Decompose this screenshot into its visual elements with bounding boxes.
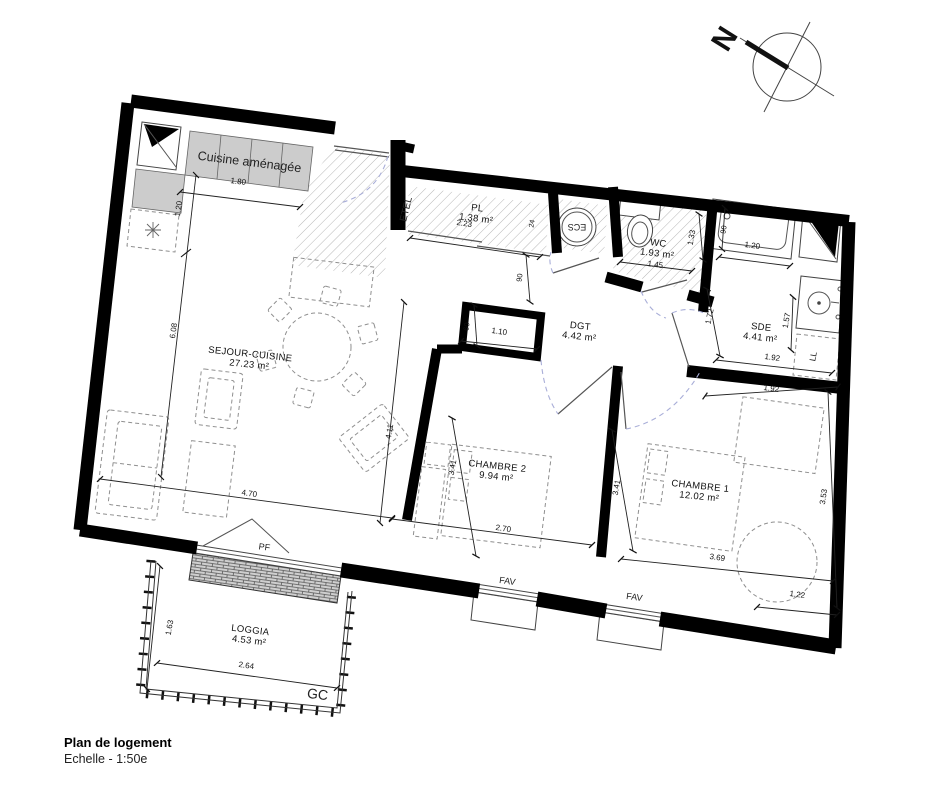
dimension-label-24: 1.63 [164,619,176,636]
ll-label: LL [807,351,819,362]
washbasin [796,276,844,333]
fav-label-2: FAV [626,591,644,603]
north-arrow-icon [746,42,788,68]
fav-label-1: FAV [499,575,517,587]
dimension-label-15: 90 [718,225,728,235]
room-label-sde: SDE4.41 m² [743,320,779,345]
fav-window-2 [597,604,666,650]
hob-star-icon [145,222,161,238]
gc-label: GC [306,685,329,703]
dimension-label-4: 4.11 [384,423,396,440]
dimension-label-20: 3.41 [611,479,623,496]
dimension-label-3: 4.70 [241,488,258,499]
north-compass: N [705,21,834,112]
ecs-label: ECS [568,222,587,232]
room-label-sejour-cuisine: SEJOUR-CUISINE27.23 m² [207,345,293,375]
dining-chairs [256,286,379,409]
dimension-label-23: 1.22 [789,589,806,600]
tv-unit [183,441,235,518]
dimension-label-17: 1.57 [781,312,793,329]
dimension-label-10: 3.41 [447,459,459,476]
dining-table [283,313,351,381]
dimension-label-8: 60 [461,322,471,332]
north-label: N [705,21,744,57]
dimension-label-18: 1.92 [764,352,781,363]
floor-plan-page: N SEJOUR-CUISINE27.23 m²CHAMBRE 29.94 m²… [0,0,936,800]
wardrobe-bedroom1 [734,397,824,474]
dimension-label-7: 90 [514,273,524,283]
dimension-lines-layer [100,175,838,689]
title-block: Plan de logement Echelle - 1:50e [64,735,172,766]
room-label-chambre-1: CHAMBRE 112.02 m² [670,478,730,505]
room-label-loggia: LOGGIA4.53 m² [229,623,270,649]
dimension-label-0: 1.80 [230,176,247,187]
duct-shaft-topleft [137,122,181,170]
dimension-label-25: 2.64 [238,660,255,671]
rug-circle [737,522,817,602]
dimension-label-22: 3.69 [709,552,726,563]
armchair-1 [195,369,244,430]
bedroom1-door [621,372,700,429]
dimension-label-6: 24 [528,219,536,228]
ecs-closet-door [550,252,599,273]
armchair-2 [338,403,409,472]
dimension-label-1: 1.20 [173,200,184,217]
dimension-label-21: 3.53 [818,488,829,505]
dimension-label-19: 1.92 [763,383,780,394]
room-label-chambre-2: CHAMBRE 29.94 m² [467,458,527,485]
bedroom2-door [541,360,612,414]
sde-door [672,310,704,368]
room-label-dgt: DGT4.42 m² [562,319,598,344]
sofa [95,410,169,521]
plan-title: Plan de logement [64,735,172,750]
plan-scale: Echelle - 1:50e [64,752,172,766]
fav-window-1 [471,584,540,630]
pf-label: PF [258,541,271,553]
floor-plan-drawing: N SEJOUR-CUISINE27.23 m²CHAMBRE 29.94 m²… [0,0,936,800]
